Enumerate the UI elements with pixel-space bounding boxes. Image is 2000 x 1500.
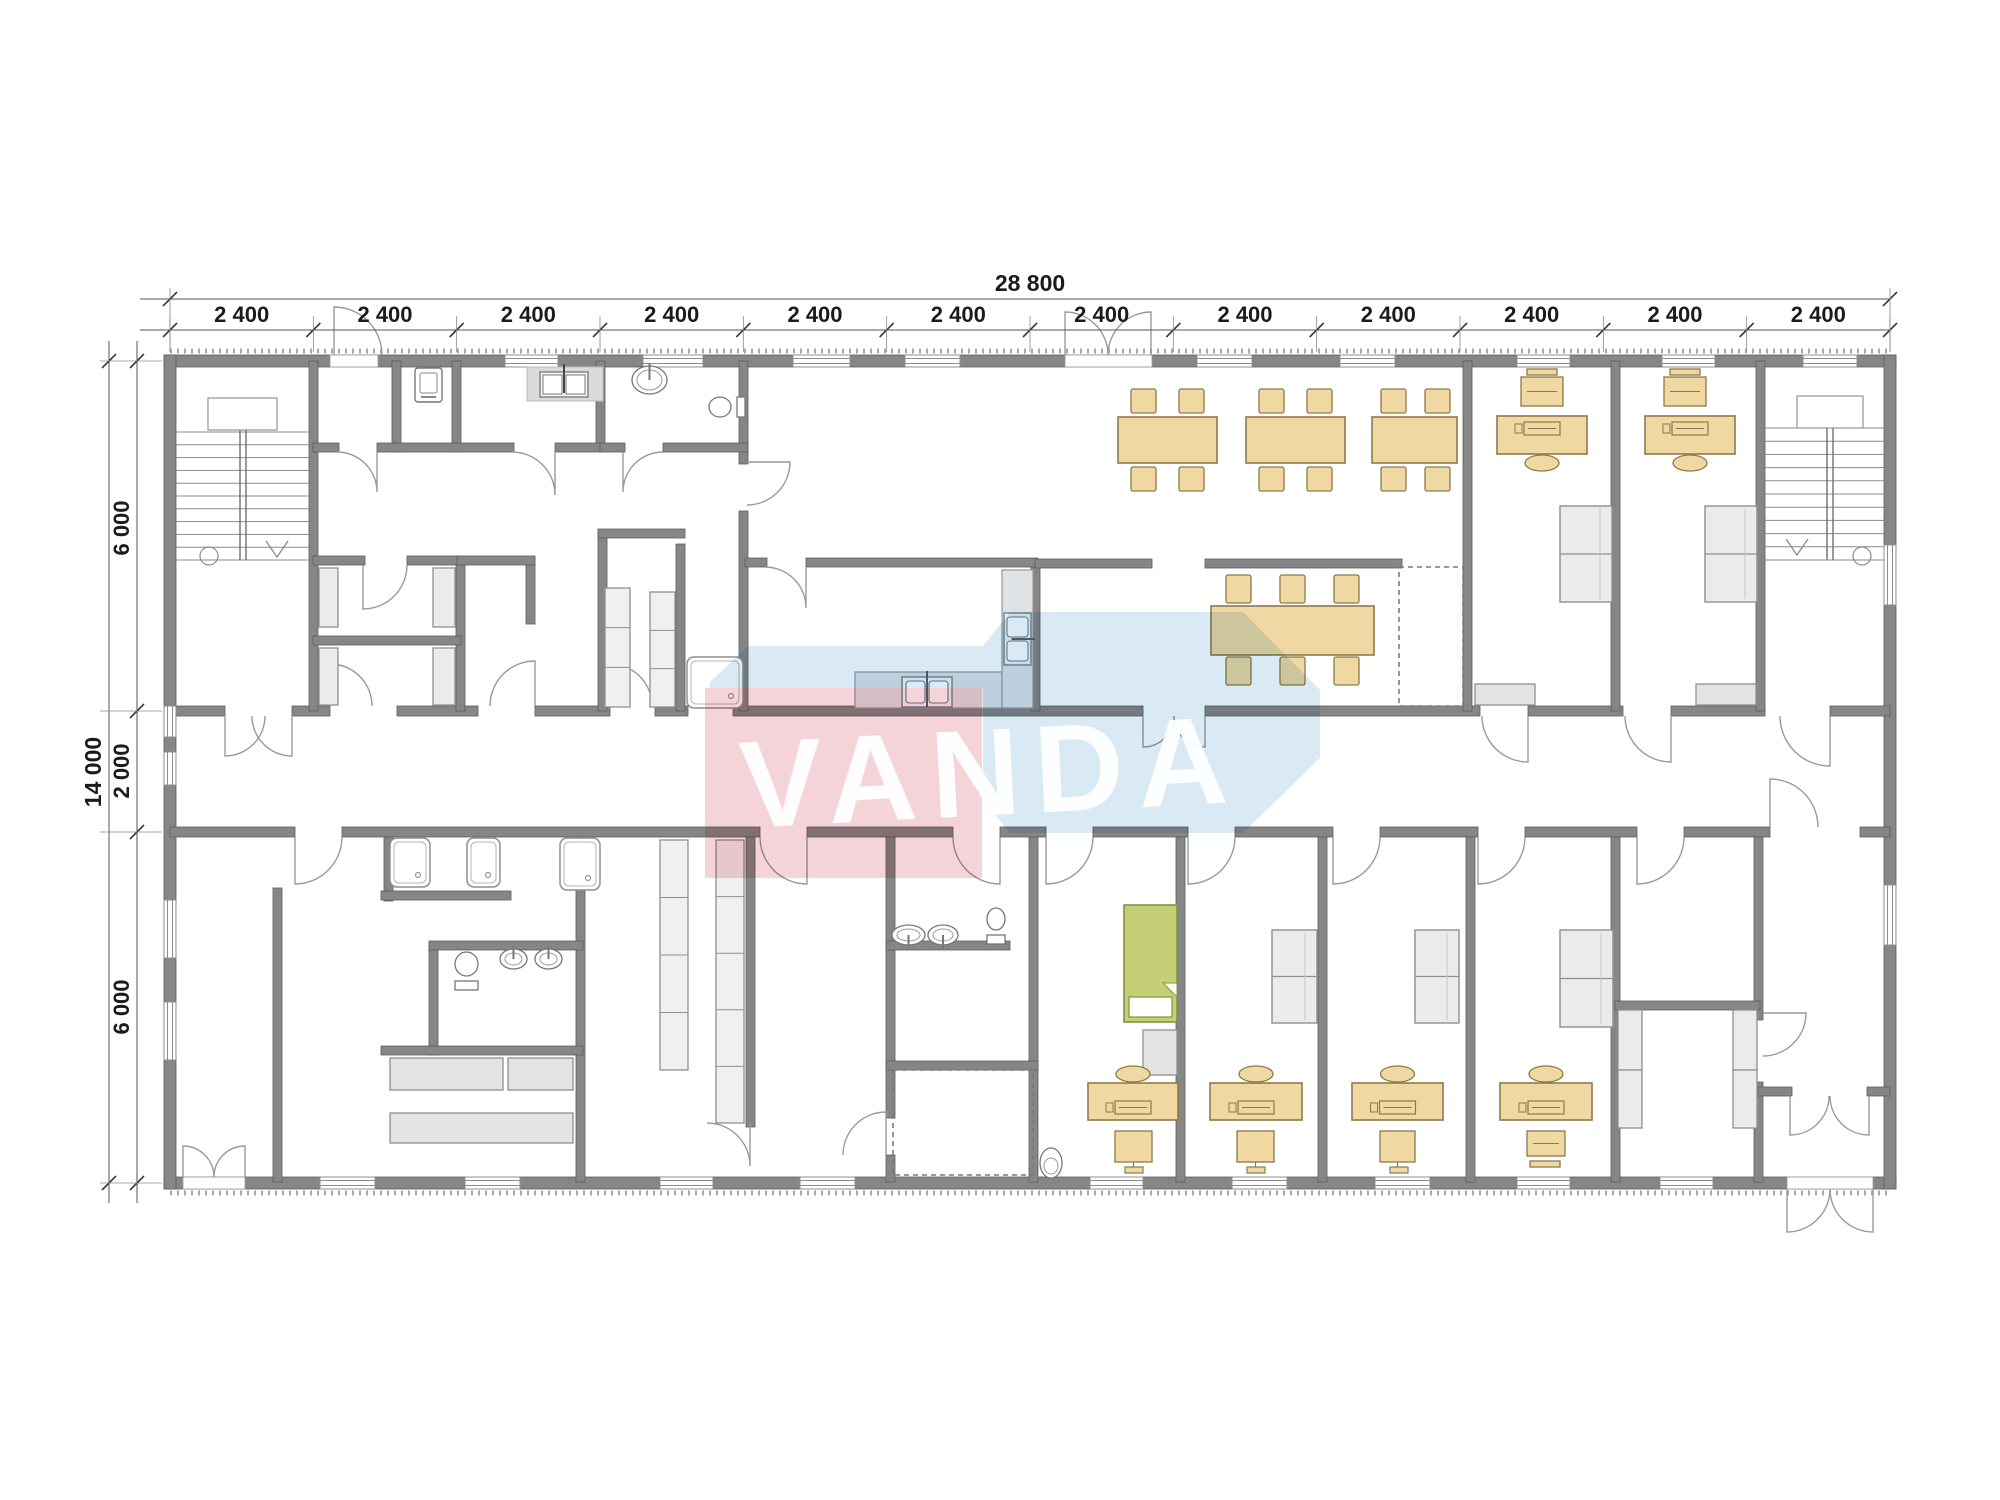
dim-top-total: 28 800 (995, 270, 1065, 296)
wall (555, 443, 602, 452)
dining-chair (1381, 467, 1406, 491)
wall (1684, 827, 1770, 837)
stair-rail (208, 398, 277, 430)
floor-plan-drawing: VANDA28 8002 4002 4002 4002 4002 4002 40… (0, 0, 2000, 1500)
wall (1318, 837, 1327, 1182)
tall-cabinet (605, 588, 630, 707)
wall (273, 888, 282, 1182)
window (164, 706, 176, 737)
window (643, 355, 703, 367)
wall (452, 361, 461, 452)
dim-top-segment: 2 400 (1791, 302, 1846, 327)
wall (676, 544, 685, 711)
dim-left-total: 14 000 (80, 737, 106, 807)
wall (806, 558, 1038, 567)
staircase-right (1765, 396, 1884, 565)
dining-chair (1131, 467, 1156, 491)
dim-top-segment: 2 400 (787, 302, 842, 327)
door-swing (252, 716, 292, 756)
staircase-left (176, 398, 309, 565)
dining-chair (1259, 467, 1284, 491)
wall (313, 556, 365, 565)
monitor (1237, 1131, 1274, 1162)
wall (1830, 706, 1890, 716)
door-swing (363, 565, 407, 609)
wall (407, 556, 459, 565)
toilet-cistern (455, 981, 478, 990)
nightstand (1143, 1030, 1177, 1075)
window (1340, 355, 1395, 367)
wall (1235, 827, 1333, 837)
wall (313, 443, 339, 452)
desk-chair (1381, 1066, 1415, 1082)
door-opening (183, 1177, 245, 1189)
dim-left-segment: 6 000 (109, 500, 134, 555)
desk-chair (1525, 455, 1559, 471)
door-swing (1478, 837, 1525, 884)
locker-bench (390, 1058, 503, 1090)
wall (1884, 355, 1896, 1189)
wardrobe-small (319, 568, 338, 627)
dim-top-segment: 2 400 (501, 302, 556, 327)
wall (886, 837, 895, 1118)
window (164, 900, 176, 958)
stair-column (200, 547, 218, 565)
door-swing (1790, 1096, 1829, 1135)
wall (1525, 827, 1637, 837)
wall (429, 945, 438, 1055)
dining-chair (1425, 467, 1450, 491)
door-swing (490, 661, 535, 706)
window (1517, 1177, 1570, 1189)
door-swing (295, 837, 342, 884)
door-swing (1625, 716, 1671, 762)
window (1662, 355, 1715, 367)
wall (377, 443, 514, 452)
wall (342, 827, 760, 837)
dining-chair (1307, 467, 1332, 491)
monitor (1380, 1131, 1415, 1162)
window (1803, 355, 1857, 367)
wall (313, 636, 461, 645)
window (1232, 1177, 1287, 1189)
dim-top-segment: 2 400 (1361, 302, 1416, 327)
wall (456, 558, 465, 711)
watermark-text: VANDA (736, 691, 1244, 855)
door-swing (747, 462, 790, 505)
logo-blue-square (710, 646, 983, 688)
stair-column (1853, 547, 1871, 565)
wall (392, 361, 401, 452)
door-opening (330, 355, 378, 367)
stair-arrow (266, 541, 288, 557)
door-opening (1787, 1177, 1873, 1189)
door-opening (1065, 355, 1152, 367)
storage-shelf (716, 840, 744, 1123)
window (1090, 1177, 1143, 1189)
shower-tray (390, 838, 430, 887)
wall (457, 556, 535, 565)
conference-chair (1334, 575, 1359, 603)
dining-chair (1381, 389, 1406, 413)
toilet-cistern (737, 397, 745, 417)
desk-chair (1116, 1066, 1150, 1082)
wall (526, 558, 535, 624)
door-swing (337, 452, 377, 492)
low-cabinet (1475, 684, 1535, 705)
monitor-stand (1247, 1167, 1265, 1173)
wall (598, 529, 685, 538)
window (465, 1177, 520, 1189)
dining-table-2 (1246, 417, 1345, 463)
dining-chair (1179, 389, 1204, 413)
window (505, 355, 558, 367)
window (320, 1177, 375, 1189)
wall (663, 443, 748, 452)
dim-top-segment: 2 400 (931, 302, 986, 327)
door-swing (707, 1123, 750, 1166)
door-swing (1482, 716, 1528, 762)
wall (745, 558, 767, 567)
dining-chair (1307, 389, 1332, 413)
wall (1035, 559, 1152, 568)
door-swing (765, 567, 806, 608)
stair-rail (1797, 396, 1863, 428)
wall (170, 706, 225, 716)
window (1884, 545, 1896, 605)
window (164, 752, 176, 785)
monitor-stand (1390, 1167, 1408, 1173)
tv-bracket (1527, 369, 1557, 375)
dining-chair (1179, 467, 1204, 491)
monitor (1115, 1131, 1152, 1162)
window (1375, 1177, 1430, 1189)
toilet-cistern (987, 935, 1005, 944)
wall (1758, 1087, 1792, 1096)
wall (1380, 827, 1478, 837)
locker (1618, 1070, 1642, 1128)
door-swing (1188, 837, 1235, 884)
window (793, 355, 850, 367)
wall (164, 355, 1896, 367)
wall (309, 361, 318, 711)
desk-chair (1239, 1066, 1273, 1082)
locker (1618, 1010, 1642, 1070)
locker (1733, 1070, 1757, 1128)
wall (397, 706, 478, 716)
wall (1463, 361, 1472, 711)
window (1884, 885, 1896, 945)
desk-chair (1529, 1066, 1563, 1082)
door-swing (1637, 837, 1684, 884)
dining-chair (1425, 389, 1450, 413)
wardrobe-small (319, 648, 338, 705)
dim-top-segment: 2 400 (214, 302, 269, 327)
dim-left-segment: 6 000 (109, 979, 134, 1034)
door-swing (512, 452, 555, 495)
dining-table-1 (1118, 417, 1217, 463)
door-swing (1333, 837, 1380, 884)
wall (429, 941, 583, 950)
door-swing (1780, 716, 1830, 766)
locker (1733, 1010, 1757, 1070)
wall (1205, 559, 1402, 568)
wall (381, 1046, 583, 1055)
floor-plan-page: VANDA28 8002 4002 4002 4002 4002 4002 40… (0, 0, 2000, 1500)
wall (1528, 706, 1623, 716)
door-swing (1763, 1013, 1806, 1056)
wardrobe-small (433, 568, 455, 627)
dining-table-3 (1372, 417, 1457, 463)
wall (1466, 837, 1475, 1182)
window (1197, 355, 1252, 367)
wall (1615, 1001, 1760, 1010)
bed-pillow (1129, 997, 1172, 1017)
window (1660, 1177, 1713, 1189)
dim-top-segment: 2 400 (1074, 302, 1129, 327)
window (905, 355, 960, 367)
wall (886, 1061, 1038, 1070)
conference-chair (1334, 657, 1359, 685)
shaft-room (1399, 567, 1463, 706)
shower-tray (560, 838, 600, 890)
dim-top-segment: 2 400 (1504, 302, 1559, 327)
tv-bracket (1530, 1161, 1560, 1167)
wall (1754, 837, 1763, 1020)
wall (746, 837, 755, 1127)
dim-top-segment: 2 400 (357, 302, 412, 327)
dining-chair (1259, 389, 1284, 413)
toilet (709, 397, 731, 417)
tall-cabinet (650, 592, 675, 707)
dim-top-segment: 2 400 (1647, 302, 1702, 327)
door-swing (214, 1146, 245, 1177)
door-swing (1770, 779, 1818, 827)
toilet (987, 908, 1005, 930)
window (660, 1177, 713, 1189)
toilet (455, 952, 478, 976)
shaft-room (893, 1070, 1033, 1175)
shower-tray (467, 838, 500, 887)
monitor-stand (1125, 1167, 1143, 1173)
door-swing (623, 452, 663, 492)
wall (1867, 1087, 1890, 1096)
window (800, 1177, 855, 1189)
dim-left-segment: 2 000 (109, 743, 134, 798)
door-swing (843, 1112, 886, 1155)
wall (170, 827, 295, 837)
wall (1860, 827, 1890, 837)
wall (381, 891, 511, 900)
window (1517, 355, 1570, 367)
wall (600, 443, 625, 452)
conference-chair (1280, 575, 1305, 603)
wall (1671, 706, 1765, 716)
dim-top-segment: 2 400 (644, 302, 699, 327)
door-swing (1830, 1096, 1869, 1135)
conference-chair (1226, 575, 1251, 603)
wardrobe-small (433, 648, 455, 705)
tv-bracket (1670, 369, 1700, 375)
door-swing (225, 716, 265, 756)
window (164, 1002, 176, 1060)
dim-top-segment: 2 400 (1217, 302, 1272, 327)
door-swing (1046, 837, 1093, 884)
locker-bench (508, 1058, 573, 1090)
low-cabinet (1696, 684, 1756, 705)
desk-chair (1673, 455, 1707, 471)
dining-chair (1131, 389, 1156, 413)
long-table (390, 1113, 573, 1143)
door-swing (183, 1146, 214, 1177)
